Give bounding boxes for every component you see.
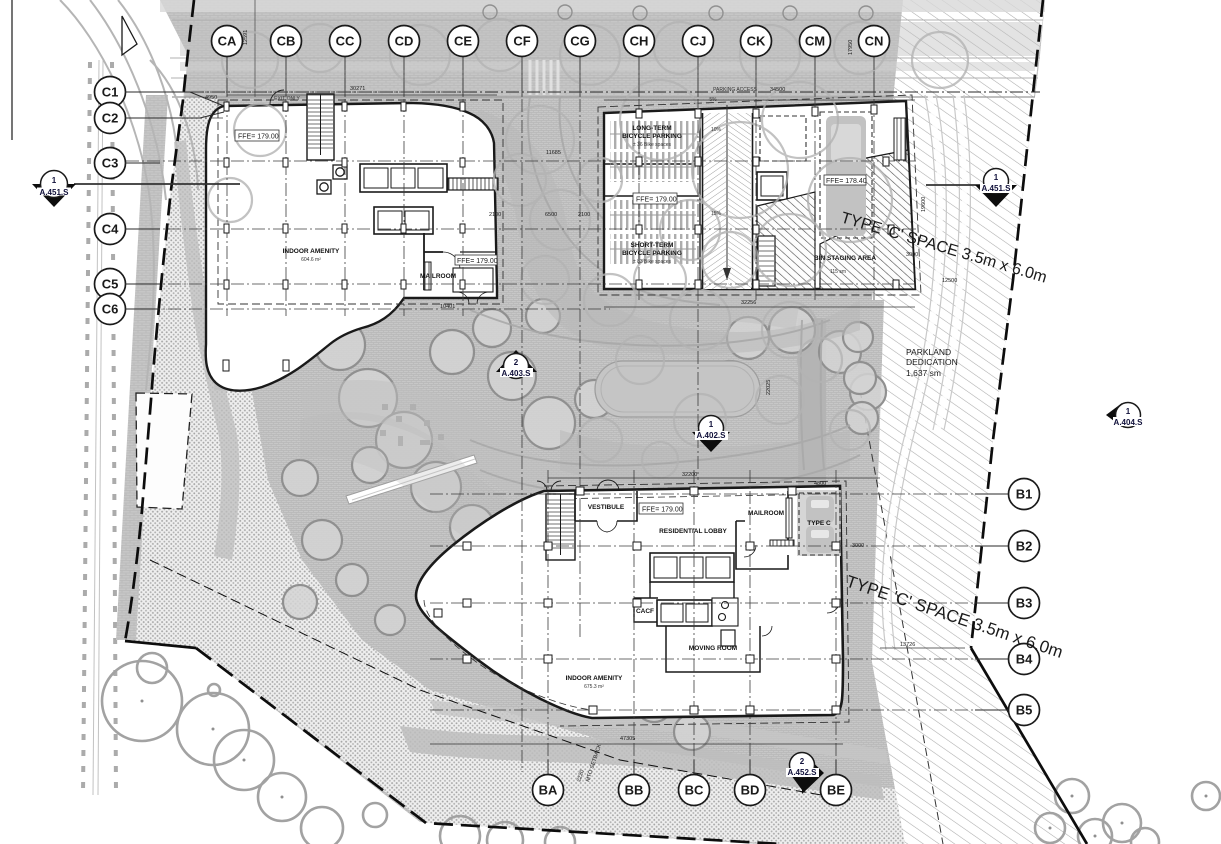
svg-text:A.452.S: A.452.S (788, 768, 818, 777)
svg-text:BC: BC (685, 783, 704, 798)
svg-text:1: 1 (994, 173, 999, 182)
svg-text:12500: 12500 (942, 278, 957, 284)
svg-text:BICYCLE PARKING: BICYCLE PARKING (622, 250, 682, 257)
svg-text:2: 2 (514, 358, 519, 367)
svg-text:CJ: CJ (690, 34, 707, 49)
svg-text:4950: 4950 (205, 95, 217, 101)
svg-text:LONG-TERM: LONG-TERM (632, 125, 671, 132)
svg-text:1: 1 (52, 176, 57, 185)
svg-text:12591: 12591 (243, 30, 249, 45)
svg-text:MAILROOM: MAILROOM (420, 273, 456, 280)
svg-text:6500: 6500 (545, 212, 557, 218)
svg-text:A.403.S: A.403.S (502, 369, 532, 378)
svg-text:TYPE C: TYPE C (807, 520, 831, 527)
svg-text:CB: CB (277, 34, 296, 49)
svg-text:SHORT-TERM: SHORT-TERM (631, 242, 674, 249)
svg-text:B4: B4 (1016, 652, 1033, 667)
svg-text:115 sm: 115 sm (830, 269, 846, 275)
svg-text:1: 1 (1126, 407, 1131, 416)
svg-text:675.3 m²: 675.3 m² (584, 684, 604, 690)
svg-text:1: 1 (709, 420, 714, 429)
svg-text:A.404.S: A.404.S (1114, 418, 1144, 427)
svg-text:13726: 13726 (900, 642, 915, 648)
svg-text:19600: 19600 (921, 197, 927, 212)
svg-text:2100: 2100 (489, 212, 501, 218)
svg-text:PARKING ACCESS: PARKING ACCESS (713, 87, 757, 93)
svg-text:BD: BD (741, 783, 760, 798)
svg-text:47305: 47305 (620, 736, 635, 742)
svg-text:C1: C1 (102, 85, 119, 100)
svg-text:15%: 15% (711, 211, 722, 217)
svg-text:34500: 34500 (770, 87, 785, 93)
svg-text:C2: C2 (102, 111, 119, 126)
svg-text:DEDICATION: DEDICATION (906, 357, 958, 367)
svg-text:VESTIBULE: VESTIBULE (588, 504, 625, 511)
svg-text:INDOOR AMENITY: INDOOR AMENITY (566, 675, 623, 682)
svg-text:4800: 4800 (814, 481, 826, 487)
svg-text:C5: C5 (102, 277, 119, 292)
svg-text:RESIDENTIAL LOBBY: RESIDENTIAL LOBBY (659, 528, 727, 535)
svg-text:604.6 m²: 604.6 m² (301, 257, 321, 263)
svg-text:B3: B3 (1016, 596, 1033, 611)
svg-text:2100: 2100 (578, 212, 590, 218)
svg-text:CACF: CACF (636, 608, 654, 615)
svg-text:CK: CK (747, 34, 766, 49)
svg-text:11685: 11685 (546, 150, 561, 156)
svg-text:BB: BB (625, 783, 644, 798)
svg-text:± 83 Bike spaces: ± 83 Bike spaces (633, 259, 672, 265)
svg-text:± 36 Bike spaces: ± 36 Bike spaces (633, 142, 672, 148)
svg-text:1,637 sm: 1,637 sm (906, 368, 941, 378)
svg-text:A.451.S: A.451.S (982, 184, 1012, 193)
svg-text:CM: CM (805, 34, 825, 49)
svg-text:C4: C4 (102, 222, 119, 237)
svg-text:BA: BA (539, 783, 558, 798)
svg-text:30271: 30271 (350, 86, 365, 92)
svg-text:CD: CD (395, 34, 414, 49)
svg-text:FFE= 179.00: FFE= 179.00 (642, 507, 683, 514)
svg-text:A.402.S: A.402.S (697, 431, 727, 440)
svg-text:10%: 10% (711, 127, 722, 133)
svg-text:10401: 10401 (440, 304, 455, 310)
svg-text:B1: B1 (1016, 487, 1033, 502)
svg-text:BIN STAGING AREA: BIN STAGING AREA (814, 255, 876, 262)
svg-text:CG: CG (570, 34, 590, 49)
svg-text:22025: 22025 (766, 380, 772, 395)
svg-text:CC: CC (336, 34, 355, 49)
svg-text:FFE= 178.40: FFE= 178.40 (826, 178, 867, 185)
svg-text:3000: 3000 (852, 543, 864, 549)
svg-text:INDOOR AMENITY: INDOOR AMENITY (283, 248, 340, 255)
svg-text:C3: C3 (102, 156, 119, 171)
svg-text:MAILROOM: MAILROOM (748, 510, 784, 517)
svg-text:PARKLAND: PARKLAND (906, 347, 951, 357)
svg-text:FFE= 179.00: FFE= 179.00 (238, 134, 279, 141)
svg-text:CF: CF (513, 34, 530, 49)
svg-text:CA: CA (218, 34, 237, 49)
svg-text:32200: 32200 (682, 472, 697, 478)
svg-text:CN: CN (865, 34, 884, 49)
svg-text:CH: CH (630, 34, 649, 49)
svg-text:BICYCLE PARKING: BICYCLE PARKING (622, 133, 682, 140)
svg-text:EXIT ONLY: EXIT ONLY (274, 96, 300, 102)
svg-text:C6: C6 (102, 302, 119, 317)
svg-text:3000: 3000 (906, 252, 918, 258)
svg-text:CE: CE (454, 34, 472, 49)
svg-text:BE: BE (827, 783, 845, 798)
svg-text:FFE= 179.00: FFE= 179.00 (457, 258, 498, 265)
svg-text:B2: B2 (1016, 539, 1033, 554)
svg-text:B5: B5 (1016, 703, 1033, 718)
svg-text:MOVING ROOM: MOVING ROOM (689, 645, 737, 652)
svg-text:17950: 17950 (848, 40, 854, 55)
svg-text:FFE= 179.00: FFE= 179.00 (636, 197, 677, 204)
svg-text:32256: 32256 (741, 300, 756, 306)
svg-text:2: 2 (800, 757, 805, 766)
svg-text:A.451.S: A.451.S (40, 188, 70, 197)
